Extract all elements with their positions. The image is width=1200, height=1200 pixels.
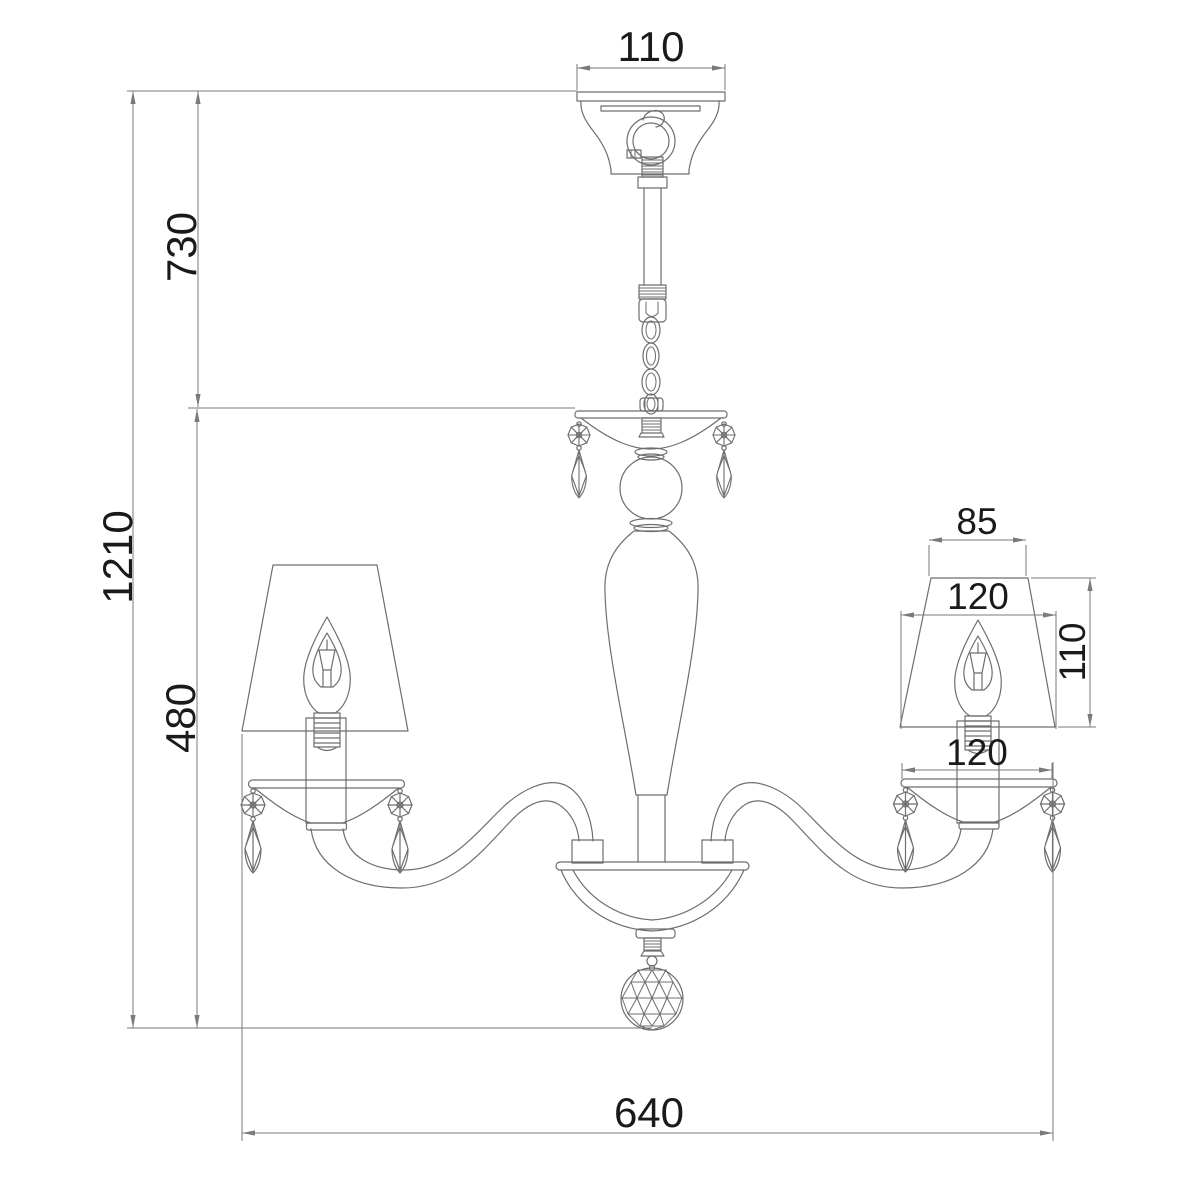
dim-canopy-width-label: 110: [618, 23, 685, 70]
bottom-bowl: [556, 862, 749, 971]
right-arm-cup: [894, 779, 1065, 872]
chain-clevis: [639, 299, 666, 322]
dim-total-width-label: 640: [614, 1089, 684, 1136]
crystal-ball-finial: [621, 968, 683, 1030]
downrod: [644, 188, 661, 285]
left-shade: [242, 565, 408, 731]
crystal-pendant: [713, 422, 735, 498]
crystal-pendant: [568, 422, 590, 498]
suspension-assembly: [639, 188, 666, 437]
left-arm-cup: [241, 780, 412, 873]
dim-shade-height-label: 110: [1052, 623, 1093, 682]
dim-arm-cup-width: 120: [902, 732, 1052, 779]
threaded-coupler: [639, 285, 666, 322]
dim-shade-bottom-width-label: 120: [947, 576, 1009, 617]
canopy-plate: [577, 92, 725, 101]
left-arm: [311, 783, 593, 888]
dim-total-height: 1210: [94, 91, 141, 1028]
dim-total-height-label: 1210: [94, 510, 141, 603]
ceiling-canopy: [577, 92, 725, 188]
chandelier-dimension-drawing: 110 1210 730 480 85 120 110: [0, 0, 1200, 1200]
dim-shade-top-width: 85: [929, 501, 1026, 576]
glass-ball: [620, 457, 682, 519]
dim-hanging-height: 730: [158, 91, 205, 407]
dim-arm-cup-width-label: 120: [946, 732, 1008, 773]
right-arm-socket-block: [702, 840, 733, 863]
right-arm: [711, 783, 993, 888]
dimension-layer: 110 1210 730 480 85 120 110: [94, 23, 1096, 1141]
right-candle-assembly: [894, 578, 1065, 872]
dim-shade-height: 110: [1031, 578, 1096, 727]
dim-hanging-height-label: 730: [158, 212, 205, 282]
canopy-mount-bar: [601, 106, 700, 111]
center-column: [605, 448, 698, 862]
dim-canopy-width: 110: [577, 23, 725, 90]
baluster-vase: [605, 531, 698, 795]
arms: [311, 783, 993, 888]
left-candle-assembly: [241, 565, 412, 873]
dim-body-height-label: 480: [157, 683, 204, 753]
dim-shade-top-width-label: 85: [956, 501, 997, 542]
chandelier-drawing: [241, 92, 1065, 1030]
left-arm-socket-block: [572, 840, 603, 863]
technical-drawing-canvas: 110 1210 730 480 85 120 110: [0, 0, 1200, 1200]
center-tube: [638, 795, 665, 862]
dim-body-height: 480: [157, 409, 204, 1028]
